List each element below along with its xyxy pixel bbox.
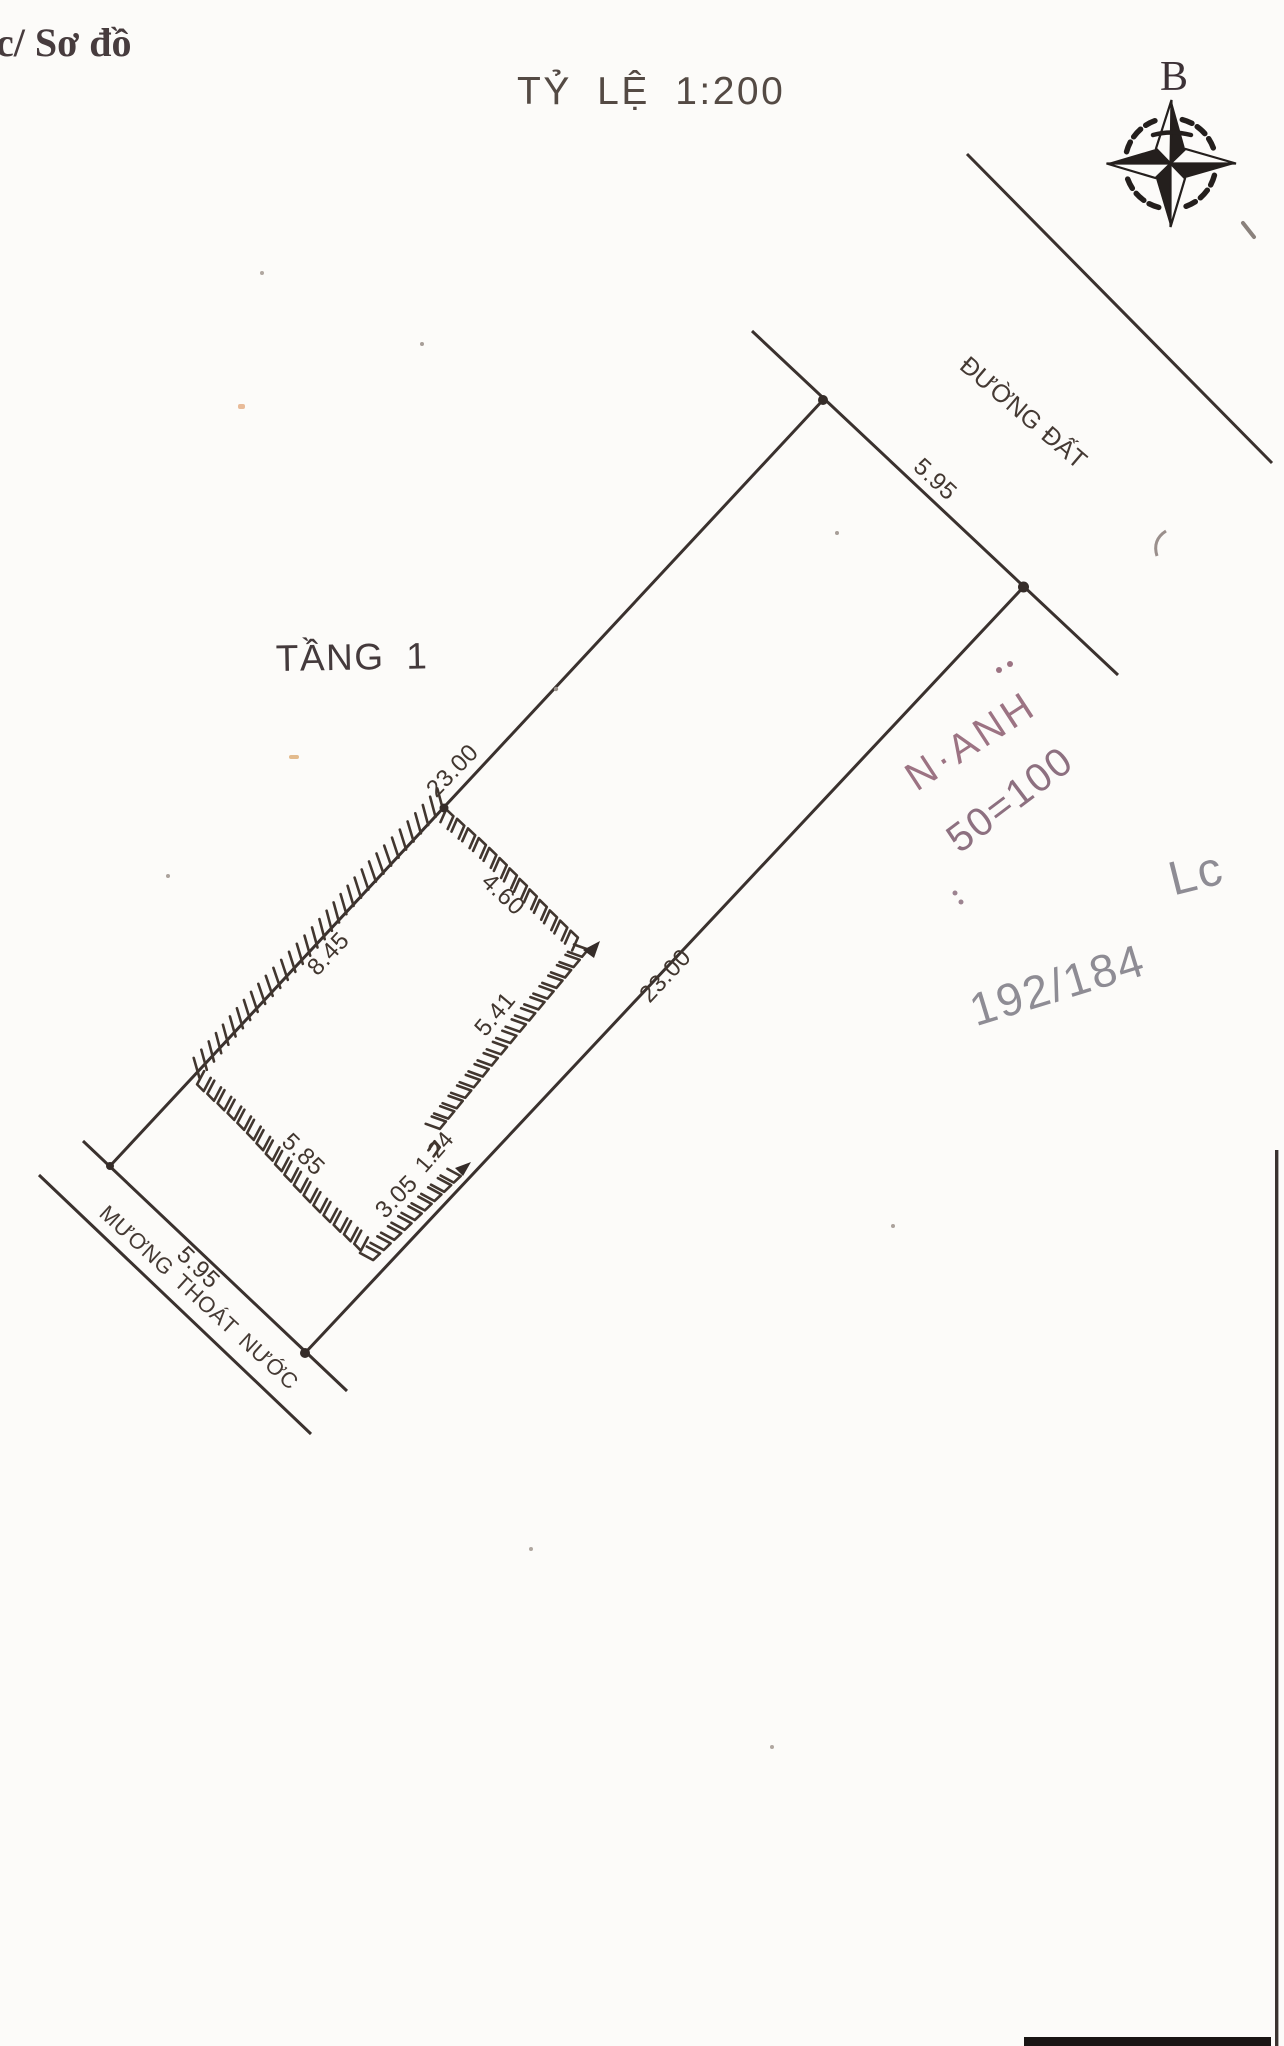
svg-text:TỶ LỆ 1:200: TỶ LỆ 1:200: [517, 69, 785, 113]
svg-text:B: B: [1160, 54, 1188, 100]
svg-text:TẦNG 1: TẦNG 1: [275, 635, 428, 679]
svg-text:c/ Sơ đồ: c/ Sơ đồ: [0, 20, 132, 65]
